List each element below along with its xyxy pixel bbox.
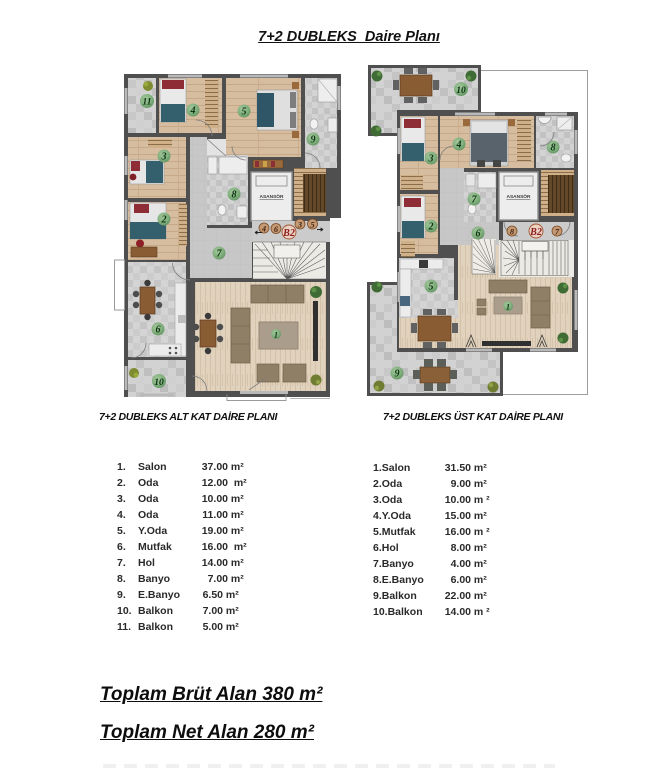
svg-text:10: 10: [154, 378, 164, 388]
svg-text:2: 2: [161, 215, 167, 226]
svg-text:1: 1: [506, 302, 510, 311]
svg-text:ASANSÖR: ASANSÖR: [260, 193, 285, 200]
svg-text:2: 2: [428, 222, 434, 233]
svg-text:3: 3: [297, 219, 303, 229]
svg-text:8: 8: [551, 143, 556, 154]
svg-text:3: 3: [428, 154, 434, 165]
svg-text:5: 5: [429, 282, 434, 293]
svg-text:ASANSÖR: ASANSÖR: [507, 193, 532, 200]
svg-text:1: 1: [274, 330, 278, 339]
svg-text:4: 4: [456, 140, 462, 151]
svg-text:3: 3: [161, 152, 167, 163]
svg-text:5: 5: [242, 107, 247, 118]
svg-text:11: 11: [143, 97, 152, 107]
svg-text:8: 8: [232, 190, 237, 201]
svg-text:10: 10: [456, 86, 466, 96]
svg-text:6: 6: [476, 229, 481, 240]
svg-text:4: 4: [261, 223, 266, 233]
svg-text:4: 4: [190, 106, 196, 117]
svg-text:B2: B2: [282, 228, 295, 239]
svg-text:9: 9: [395, 369, 400, 380]
svg-text:B2: B2: [529, 227, 542, 238]
svg-text:9: 9: [311, 135, 316, 146]
svg-text:6: 6: [156, 325, 161, 336]
